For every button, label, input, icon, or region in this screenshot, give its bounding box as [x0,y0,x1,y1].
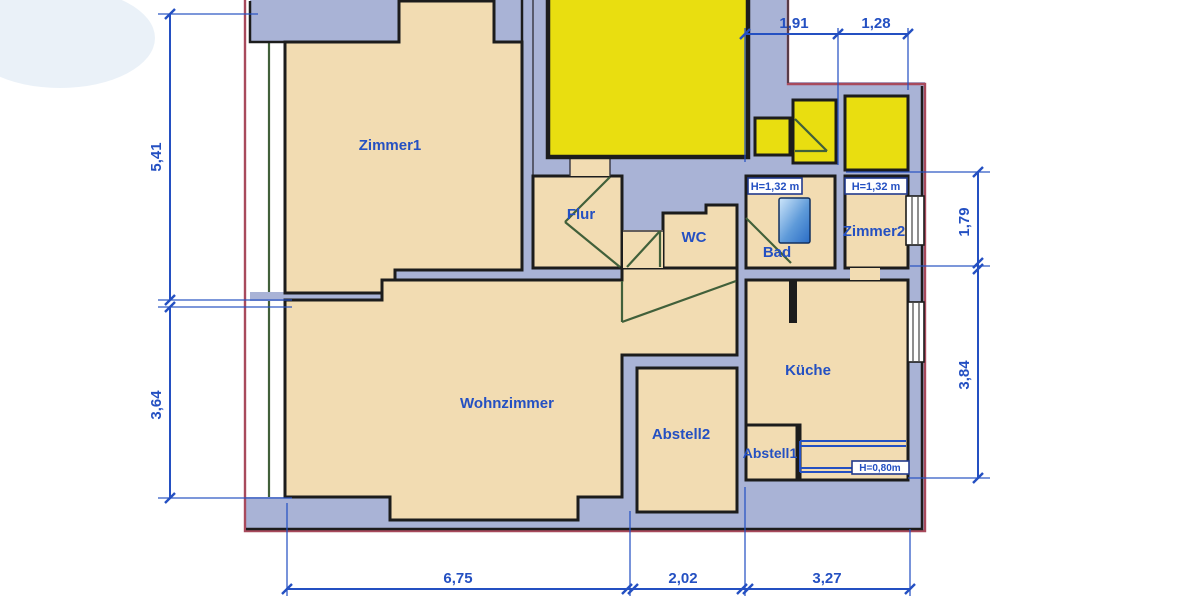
floor-plan-svg: H=1,32 m H=1,32 m H=0,80m Zimmer1 Flur W… [0,0,1200,600]
dim-label-left-1: 5,41 [148,142,165,171]
room-label-flur: Flur [567,206,595,223]
room-label-kueche: Küche [785,362,831,379]
yellow-area-a [755,118,790,155]
dim-label-right-2: 3,84 [956,360,973,390]
window-kueche [908,302,924,362]
room-label-wohnzimmer: Wohnzimmer [460,395,554,412]
yellow-area-c [845,96,908,170]
dim-label-left-2: 3,64 [148,390,165,420]
dim-label-bottom-3: 3,27 [812,570,841,587]
height-label-zimmer2: H=1,32 m [852,181,901,193]
kueche-wall-stub [789,280,797,323]
door-gap-zimmer2 [850,268,880,280]
dim-label-bottom-2: 2,02 [668,570,697,587]
dim-label-bottom-1: 6,75 [443,570,472,587]
room-label-bad: Bad [763,244,791,261]
room-label-abstell2: Abstell2 [652,426,710,443]
floor-plan-page: H=1,32 m H=1,32 m H=0,80m Zimmer1 Flur W… [0,0,1200,600]
dim-label-top-2: 1,28 [861,15,890,32]
room-label-zimmer2: Zimmer2 [843,223,906,240]
dim-label-top-1: 1,91 [779,15,808,32]
dim-label-right-1: 1,79 [956,207,973,236]
room-label-abstell1: Abstell1 [743,445,798,461]
height-label-counter: H=0,80m [859,463,901,474]
room-label-zimmer1: Zimmer1 [359,137,422,154]
yellow-area-b [793,100,836,163]
bathtub-icon [779,198,810,243]
height-label-bad: H=1,32 m [751,181,800,193]
room-label-wc: WC [682,229,707,246]
yellow-area-main [548,0,748,157]
scan-smudge [0,0,155,88]
window-zimmer2 [906,196,924,245]
